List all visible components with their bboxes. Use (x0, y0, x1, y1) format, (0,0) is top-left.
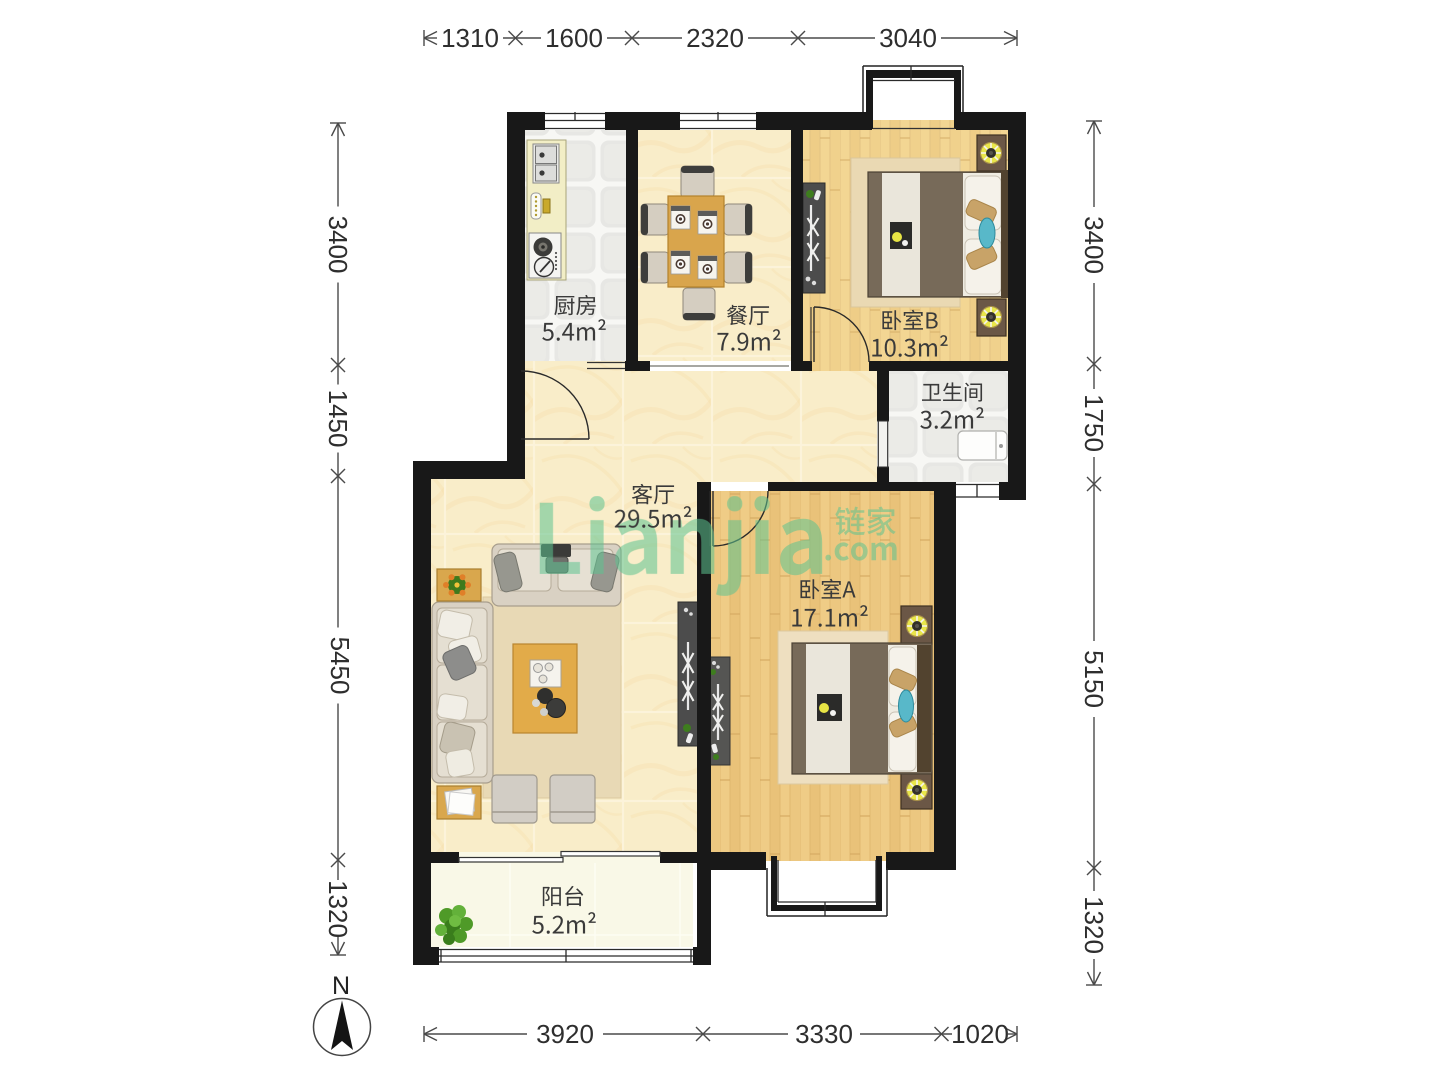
svg-text:1320: 1320 (1079, 896, 1109, 954)
svg-text:3400: 3400 (323, 216, 353, 274)
svg-text:3920: 3920 (536, 1019, 594, 1049)
svg-text:1320: 1320 (323, 880, 353, 938)
svg-text:1020: 1020 (951, 1019, 1009, 1049)
svg-text:2320: 2320 (686, 23, 744, 53)
svg-text:3040: 3040 (879, 23, 937, 53)
svg-text:1310: 1310 (441, 23, 499, 53)
svg-text:1450: 1450 (323, 390, 353, 448)
svg-text:1600: 1600 (545, 23, 603, 53)
svg-text:3330: 3330 (795, 1019, 853, 1049)
svg-text:N: N (332, 972, 350, 1000)
svg-text:5150: 5150 (1079, 650, 1109, 708)
svg-text:5450: 5450 (325, 637, 355, 695)
svg-text:3400: 3400 (1079, 216, 1109, 274)
svg-text:1750: 1750 (1079, 394, 1109, 452)
